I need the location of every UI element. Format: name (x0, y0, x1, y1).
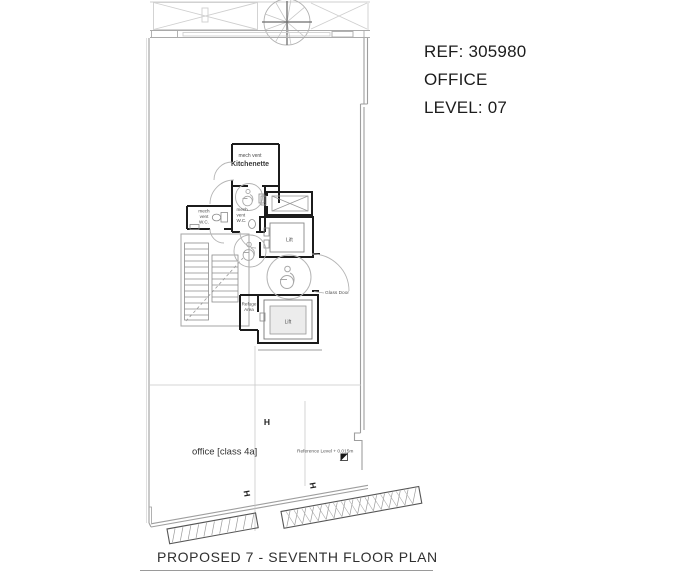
wc-left-label-line1: mech (198, 209, 210, 214)
spiral-stair-symbol (262, 0, 312, 45)
floor-plan-page: mech vent Kitchenette mech vent W.C. mec… (0, 0, 687, 575)
glass-door-label: Glass Door (325, 290, 349, 296)
wc-right-label-line1: mech (237, 207, 249, 212)
balcony-right (281, 486, 422, 528)
wc-right-label-line2: vent (237, 213, 246, 218)
kitchenette-vent-label: mech vent (238, 153, 262, 159)
plan-title: PROPOSED 7 - SEVENTH FLOOR PLAN (157, 549, 438, 565)
column-marker: H (241, 490, 252, 498)
refuge-area-label-line2: Area (244, 307, 254, 312)
column-marker: H (264, 417, 270, 427)
floor-plan-drawing: mech vent Kitchenette mech vent W.C. mec… (0, 0, 687, 575)
roof-strip (150, 2, 370, 30)
column-marker: H (307, 482, 318, 490)
wc-left-label-line3: W.C. (199, 220, 209, 225)
ref-number: REF: 305980 (424, 38, 526, 66)
office-class-label: office [class 4a] (192, 447, 257, 458)
balcony-left (167, 513, 258, 544)
wc-right-label-line3: W.C. (237, 218, 247, 223)
kitchenette-label: Kitchenette (231, 161, 269, 168)
roof-strip-band (150, 31, 370, 39)
plan-title-rule (140, 570, 433, 571)
reference-level-label: Reference Level + 0.015m (297, 449, 353, 455)
level-number: LEVEL: 07 (424, 94, 526, 122)
accessible-lobby-symbol (267, 255, 311, 299)
level-marker-icon (341, 454, 348, 461)
use-class: OFFICE (424, 66, 526, 94)
accessible-wc-symbol (234, 235, 266, 267)
wc-left-label-line2: vent (200, 214, 209, 219)
drawing-info-panel: REF: 305980 OFFICE LEVEL: 07 (424, 38, 526, 122)
refuge-area-label-line1: Refuge (242, 302, 257, 307)
lift-upper-label: Lift (286, 238, 293, 244)
staircase (181, 234, 249, 326)
lift-lower-label: Lift (285, 320, 292, 326)
